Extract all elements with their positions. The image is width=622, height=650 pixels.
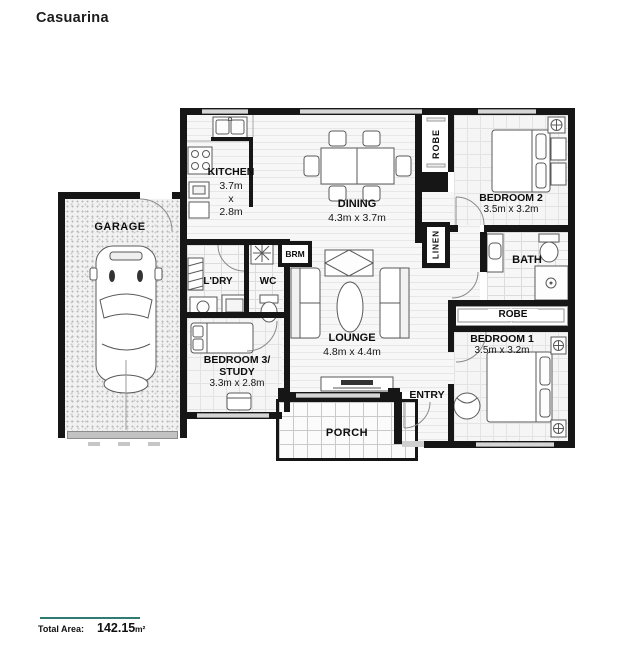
tv-unit-icon [321,377,393,391]
wall [422,172,448,192]
kitchen-dims: 3.7m x 2.8m [196,180,266,219]
wall [187,239,290,245]
wall [180,312,290,318]
desk-chair-icon [227,393,251,410]
laundry-door-arc [218,245,244,271]
armchair-icon [454,393,480,419]
wall [394,392,402,444]
window [300,109,422,114]
entry-door-arc [404,402,430,428]
entry-threshold [402,441,424,447]
bedroom3-dims: 3.3m x 2.8m [194,378,280,391]
wall [568,108,575,448]
bedroom1-dims: 3.5m x 3.2m [446,345,558,358]
wall [484,225,575,232]
porch-label: PORCH [303,427,391,440]
wall [172,192,180,199]
brm-label: BRM [285,249,304,259]
kitchen-sink-icon [213,117,247,138]
bed-icon-bedroom3 [191,323,253,353]
dining-label: DINING [307,198,407,211]
bath-label: BATH [493,254,561,267]
kitchen-bench-edge [211,137,253,141]
floor-plan-page: Casuarina [0,0,622,650]
brm-cupboard: BRM [278,241,312,267]
coffee-table-icon [337,282,363,332]
robe1-label: ROBE [488,309,538,321]
wall [180,108,187,438]
ceiling-fan-icon [548,117,565,133]
wall [448,113,454,172]
garage-roller-door [67,431,178,439]
car-icon [90,246,162,430]
total-area-label: Total Area: [38,624,84,634]
laundry-label: L'DRY [189,276,247,288]
bedroom1-label: BEDROOM 1 [446,333,558,345]
total-area-unit: m² [135,624,145,634]
window [202,109,248,114]
furniture-layer [0,0,622,650]
bedroom3-label: BEDROOM 3/ STUDY [194,354,280,379]
wall [415,108,422,243]
total-area-value: 142.15 [97,621,135,635]
dining-table-icon [304,131,411,201]
wall [480,232,487,272]
wall [58,192,65,438]
wall [448,300,575,306]
kitchen-label: KITCHEN [196,166,266,178]
lounge-label: LOUNGE [298,332,406,345]
wall [448,326,575,332]
window [197,413,269,418]
window [478,109,536,114]
total-area-rule [40,617,140,619]
bed-icon-bedroom1 [487,352,552,422]
driveway-mark [88,442,100,446]
window [476,442,554,447]
wc-label: WC [250,276,286,288]
hot-water-unit-icon [251,242,273,264]
wall [58,192,140,199]
wall [284,312,290,412]
dining-dims: 4.3m x 3.7m [307,212,407,225]
bedroom2-dims: 3.5m x 3.2m [456,204,566,217]
entry-label: ENTRY [402,389,452,401]
robe2-label: ROBE [425,118,447,170]
driveway-mark [118,442,130,446]
wall [448,300,456,332]
bedroom2-label: BEDROOM 2 [456,192,566,204]
driveway-mark [148,442,160,446]
media-cabinet-icon [325,250,373,276]
garage-label: GARAGE [70,221,170,234]
linen-label: LINEN [427,227,445,263]
bed-icon-bedroom2 [492,130,566,192]
lounge-dims: 4.8m x 4.4m [298,346,406,359]
window [296,393,380,398]
bath-door-arc [452,272,478,298]
shower-icon [535,266,568,300]
